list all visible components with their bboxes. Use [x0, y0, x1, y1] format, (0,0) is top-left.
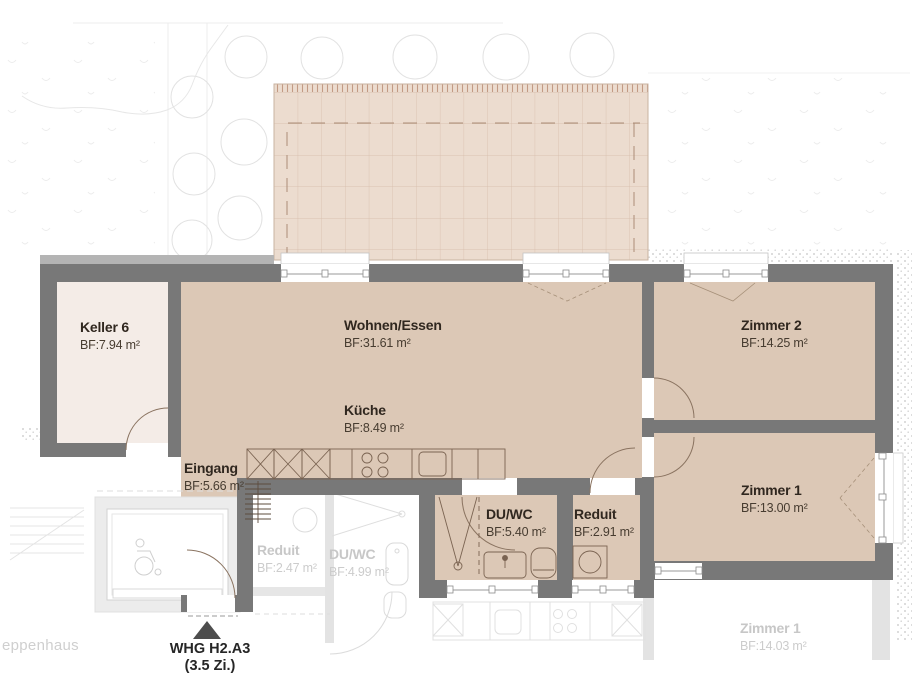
- room-floor-zimmer1: [654, 433, 875, 561]
- floor-plan-drawing: [0, 0, 920, 696]
- faded-shower: [332, 493, 405, 536]
- apartment-entrance-marker-icon: [193, 621, 221, 639]
- window-duwc-south: [447, 580, 538, 598]
- grass-texture-left: [0, 36, 155, 248]
- faded-washer: [293, 508, 317, 532]
- room-floor-keller: [57, 282, 168, 443]
- window-zimmer1-south: [655, 563, 702, 579]
- apartment-marker-label: WHG H2.A3 (3.5 Zi.): [145, 641, 275, 675]
- room-floor-zimmer2: [654, 282, 875, 420]
- stairwell-label: eppenhaus: [2, 637, 79, 654]
- apartment-id: WHG H2.A3: [170, 641, 251, 657]
- stair-treads: [10, 508, 84, 560]
- gravel-strip-right: [896, 250, 912, 640]
- window-living-1: [281, 253, 369, 282]
- floor-plan-canvas: Keller 6 BF:7.94 m² Wohnen/Essen BF:31.6…: [0, 0, 920, 696]
- grass-texture-right: [655, 78, 891, 246]
- faded-kitchen-row: [433, 602, 645, 640]
- window-reduit-south: [572, 580, 634, 598]
- parapet-edge: [40, 255, 274, 264]
- terrace: [274, 84, 648, 260]
- faded-wall-right: [872, 580, 890, 660]
- apartment-rooms-count: (3.5 Zi.): [145, 658, 275, 675]
- faded-door-arc: [330, 592, 392, 654]
- wall-west: [40, 264, 57, 457]
- faded-toilet: [384, 592, 406, 618]
